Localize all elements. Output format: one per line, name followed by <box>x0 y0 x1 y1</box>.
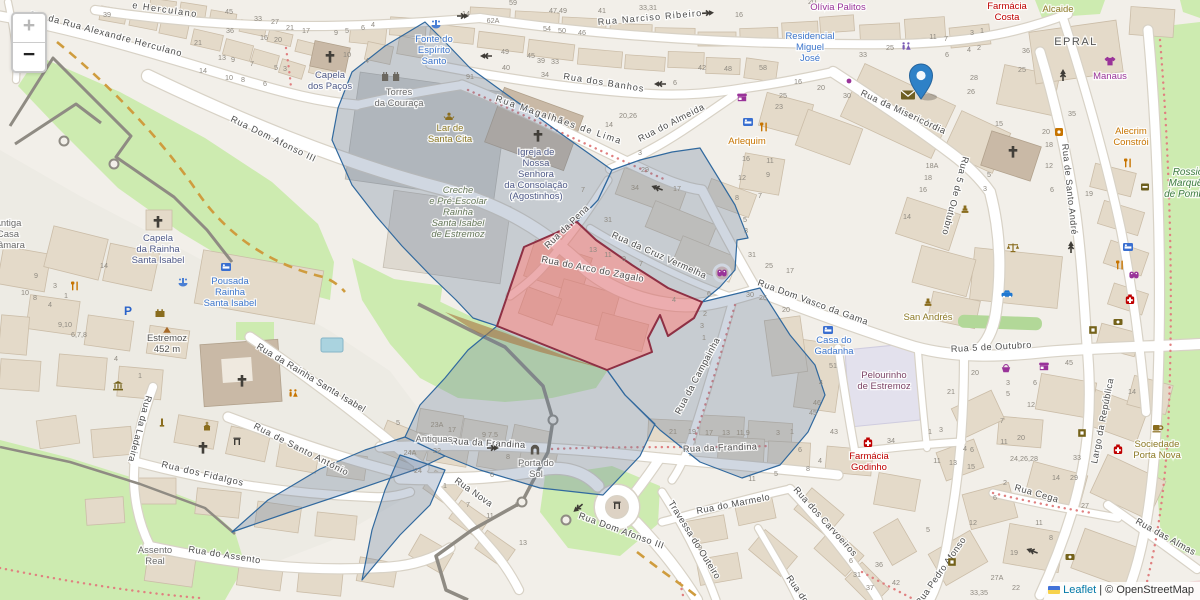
house-number: 1 <box>443 481 447 490</box>
house-number: 1 <box>790 427 794 436</box>
house-number: 11 <box>748 474 755 483</box>
house-number: 22 <box>1012 583 1020 592</box>
house-number: 3 <box>776 428 780 437</box>
dot-icon <box>847 79 852 84</box>
house-number: 25 <box>886 43 894 52</box>
house-number: 45 <box>225 7 233 16</box>
house-number: 29 <box>641 165 649 174</box>
house-number: 4 <box>819 378 823 387</box>
house-number: 14 <box>903 212 911 221</box>
house-number: 17 <box>448 425 456 434</box>
house-number: 36 <box>226 26 234 35</box>
poi-label: SociedadePorta Nova <box>1133 439 1181 461</box>
well-icon <box>1078 429 1086 437</box>
house-number: 6 <box>993 493 997 502</box>
house-number: 14 <box>1128 387 1136 396</box>
house-number: 27 <box>271 17 279 26</box>
house-number: 9,10 <box>58 320 72 329</box>
zoom-in-button[interactable]: + <box>13 14 45 43</box>
house-number: 37 <box>866 583 874 592</box>
house-number: 25 <box>1018 65 1026 74</box>
money-icon <box>1114 319 1123 325</box>
house-number: 11 <box>1000 437 1007 446</box>
house-number: 17 <box>705 428 713 437</box>
house-number: 5 <box>1006 389 1010 398</box>
house-number: 16 <box>735 10 743 19</box>
house-number: 25 <box>765 261 773 270</box>
house-number: 21 <box>194 38 202 47</box>
house-number: 33 <box>1073 453 1081 462</box>
poi-label: Casa doGadanha <box>814 335 854 357</box>
house-number: 11,9 <box>736 428 749 437</box>
house-number: 33 <box>551 57 559 66</box>
house-number: 16 <box>260 33 268 42</box>
poi-label: San Andrés <box>903 312 952 323</box>
house-number: 42 <box>698 63 706 72</box>
house-number: 9 <box>698 543 702 552</box>
house-number: 10 <box>343 50 351 59</box>
house-number: 3 <box>53 281 57 290</box>
house-number: 24,26,28 <box>1010 454 1038 463</box>
house-number: 45 <box>527 51 535 60</box>
zoom-control: + − <box>11 12 47 73</box>
house-number: 26 <box>967 87 975 96</box>
house-number: 6 <box>945 50 949 59</box>
house-number: 9 <box>766 170 770 179</box>
house-number: 6 <box>970 445 974 454</box>
house-number: 48 <box>724 64 732 73</box>
house-number: 8 <box>33 293 37 302</box>
house-number: 11 <box>933 456 940 465</box>
house-number: 31 <box>604 215 612 224</box>
house-number: 3 <box>638 148 642 157</box>
house-number: 1 <box>64 291 68 300</box>
house-number: 6 <box>1033 378 1037 387</box>
house-number: 6,7,8 <box>71 330 87 339</box>
house-number: 3 <box>983 184 987 193</box>
house-number: 40 <box>502 63 510 72</box>
house-number: 20,26 <box>619 111 637 120</box>
house-number: 34 <box>541 70 549 79</box>
house-number: 26 <box>759 293 767 302</box>
house-number: 5 <box>274 63 278 72</box>
awning-icon <box>1039 363 1049 371</box>
attribution-bar: Leaflet | © OpenStreetMap <box>1044 582 1200 600</box>
house-number: 31 <box>853 570 861 579</box>
house-number: 49 <box>501 47 509 56</box>
house-number: 20 <box>782 305 790 314</box>
house-number: 11 <box>929 32 936 41</box>
house-number: 13 <box>949 458 957 467</box>
house-number: 36 <box>1022 46 1030 55</box>
house-number: 46 <box>813 398 821 407</box>
shoporange-icon <box>1055 128 1063 136</box>
house-number: 13 <box>218 53 226 62</box>
house-number: 4 <box>114 354 118 363</box>
house-number: 30 <box>843 91 851 100</box>
house-number: 12 <box>1027 400 1035 409</box>
house-number: 14 <box>199 66 207 75</box>
house-number: 13 <box>519 538 527 547</box>
house-number: 27 <box>1081 501 1089 510</box>
house-number: 1 <box>980 26 984 35</box>
house-number: 7 <box>758 191 762 200</box>
house-number: 21 <box>947 387 955 396</box>
house-number: 59 <box>509 0 517 7</box>
house-number: 11 <box>604 250 611 259</box>
house-number: 4 <box>48 300 52 309</box>
well-icon <box>948 558 956 566</box>
house-number: 4 <box>963 444 967 453</box>
map-canvas: e Herculanoras da Rua Alexandre Herculan… <box>0 0 1200 600</box>
house-number: 18 <box>1045 140 1053 149</box>
house-number: 6 <box>1050 185 1054 194</box>
house-number: 50 <box>558 26 566 35</box>
house-number: 6 <box>707 289 711 298</box>
house-number: 3 <box>939 425 943 434</box>
house-number: 14 <box>100 261 108 270</box>
zoom-out-button[interactable]: − <box>13 43 45 71</box>
house-number: 6 <box>673 78 677 87</box>
house-number: 4 <box>365 56 369 65</box>
house-number: 3 <box>700 321 704 330</box>
house-number: 20 <box>1017 433 1025 442</box>
house-number: 14 <box>605 120 613 129</box>
house-number: 23A <box>431 420 444 429</box>
osm-copyright: © OpenStreetMap <box>1105 584 1194 596</box>
poi-label: Olívia Palitos <box>810 2 866 13</box>
house-number: 34 <box>887 436 895 445</box>
house-number: 18 <box>924 173 932 182</box>
poi-label: Pelourinhode Estremoz <box>857 370 911 392</box>
house-number: 12 <box>969 518 977 527</box>
poi-label: EPRAL <box>1054 36 1098 48</box>
house-number: 3 <box>1006 378 1010 387</box>
parking-icon: P <box>124 304 132 318</box>
shopdark-icon <box>1141 184 1149 191</box>
house-number: 9 <box>622 254 626 263</box>
house-number: 9 <box>334 28 338 37</box>
hotel-icon <box>743 118 753 126</box>
house-number: 33 <box>254 14 262 23</box>
house-number: 28 <box>970 73 978 82</box>
house-number: 6 <box>361 23 365 32</box>
house-number: 10 <box>21 288 29 297</box>
house-number: 3 <box>744 226 748 235</box>
poi-label: FarmáciaGodinho <box>849 451 889 473</box>
house-number: 7 <box>1000 416 1004 425</box>
house-number: 9 <box>231 55 235 64</box>
hotel-icon <box>221 263 231 271</box>
house-number: 25 <box>779 91 787 100</box>
house-number: 9 7.5 <box>482 430 498 439</box>
house-number: 5 <box>396 418 400 427</box>
house-number: 8 <box>515 500 519 509</box>
house-number: 20 <box>274 35 282 44</box>
poi-label: AlecrimConstrói <box>1113 126 1148 148</box>
house-number: 7 <box>581 185 585 194</box>
map-container[interactable]: e Herculanoras da Rua Alexandre Herculan… <box>0 0 1200 600</box>
house-number: 3 <box>283 64 287 73</box>
hotel-icon <box>1123 243 1133 251</box>
house-number: 12 <box>738 173 746 182</box>
house-number: 19 <box>1010 548 1018 557</box>
house-number: 11 <box>1035 518 1042 527</box>
house-number: 16 <box>794 77 802 86</box>
house-number: 2 <box>1003 478 1007 487</box>
house-number: 24A <box>404 448 417 457</box>
house-number: 4 <box>371 20 375 29</box>
house-number: 91 <box>466 72 474 81</box>
house-number: 4 <box>967 45 971 54</box>
svg-text:P: P <box>124 304 132 318</box>
house-number: 13 <box>589 245 597 254</box>
house-number: 39 <box>537 56 545 65</box>
poi-label: Antiquas <box>416 434 453 445</box>
house-number: 8 <box>241 75 245 84</box>
house-number: 31 <box>748 250 756 259</box>
well-icon <box>1089 326 1097 334</box>
house-number: 17 <box>786 266 794 275</box>
house-number: 54 <box>543 24 551 33</box>
house-number: 4 <box>672 295 676 304</box>
house-number: 27A <box>991 573 1004 582</box>
house-number: 21 <box>286 23 294 32</box>
house-number: 13 <box>722 428 730 437</box>
house-number: 6 <box>798 445 802 454</box>
ukraine-flag-icon <box>1048 586 1060 594</box>
house-number: 1 <box>138 371 142 380</box>
house-number: 45 <box>809 408 817 417</box>
house-number: 7 <box>639 259 643 268</box>
house-number: 5 <box>345 26 349 35</box>
house-number: 34 <box>631 183 639 192</box>
poi-label: Manaus <box>1093 71 1127 82</box>
house-number: 39 <box>103 10 111 19</box>
house-number: 15 <box>995 119 1003 128</box>
house-number: 33 <box>859 50 867 59</box>
house-number: 35 <box>1068 109 1076 118</box>
house-number: 5 <box>743 215 747 224</box>
house-number: 6 <box>849 556 853 565</box>
house-number: 14 <box>1052 473 1060 482</box>
house-number: 2 <box>977 43 981 52</box>
house-number: 22 <box>433 446 441 455</box>
house-number: 1 <box>702 333 706 342</box>
house-number: 7 <box>250 59 254 68</box>
awning-icon <box>737 94 747 102</box>
house-number: 51 <box>829 361 837 370</box>
house-number: 8 <box>506 452 510 461</box>
house-number: 15 <box>967 462 975 471</box>
poi-label: Arlequim <box>728 136 766 147</box>
house-number: 16 <box>742 154 750 163</box>
house-number: 5 <box>774 469 778 478</box>
house-number: 33,35 <box>970 588 988 597</box>
house-number: 19 <box>1085 189 1093 198</box>
house-number: 10 <box>225 73 233 82</box>
house-number: 7 <box>944 34 948 43</box>
house-number: 41 <box>598 6 606 15</box>
house-number: 7 <box>466 500 470 509</box>
house-number: 58 <box>759 63 767 72</box>
house-number: 36 <box>875 560 883 569</box>
house-number: 4 <box>818 456 822 465</box>
house-number: 5 <box>926 525 930 534</box>
poi-label: Alcaide <box>1042 4 1073 15</box>
house-number: 2 <box>703 309 707 318</box>
leaflet-link[interactable]: Leaflet <box>1063 584 1096 596</box>
house-number: 62A <box>487 16 500 25</box>
house-number: 47,49 <box>549 6 567 15</box>
house-number: 43 <box>830 427 838 436</box>
house-number: 16 <box>919 185 927 194</box>
house-number: 5 <box>987 170 991 179</box>
house-number: 20 <box>817 83 825 92</box>
house-number: 3 <box>970 28 974 37</box>
house-number: 19 <box>688 427 696 436</box>
money-icon <box>1066 554 1075 560</box>
house-number: 46 <box>578 28 586 37</box>
house-number: 42 <box>892 578 900 587</box>
house-number: 17 <box>302 26 310 35</box>
house-number: 21 <box>669 427 677 436</box>
house-number: 8 <box>735 193 739 202</box>
hotel-icon <box>823 326 833 334</box>
house-number: 45 <box>1065 358 1073 367</box>
house-number: 8 <box>1049 533 1053 542</box>
house-number: 6 <box>490 470 494 479</box>
house-number: 30 <box>746 290 754 299</box>
house-number: 12 <box>1045 161 1053 170</box>
house-number: 29 <box>1070 473 1078 482</box>
house-number: 24 <box>414 466 422 475</box>
house-number: 33,31 <box>639 3 657 12</box>
attribution-separator: | <box>1096 584 1105 596</box>
house-number: 11 <box>766 156 773 165</box>
envelope-icon <box>901 91 915 100</box>
house-number: 8 <box>806 464 810 473</box>
house-number: 18A <box>926 161 939 170</box>
house-number: 9 <box>34 271 38 280</box>
house-number: 11 <box>486 511 493 520</box>
house-number: 17 <box>673 184 681 193</box>
house-number: 20 <box>1042 127 1050 136</box>
house-number: 23 <box>775 102 783 111</box>
house-number: 20 <box>971 368 979 377</box>
house-number: 6 <box>263 79 267 88</box>
house-number: 1 <box>928 427 932 436</box>
